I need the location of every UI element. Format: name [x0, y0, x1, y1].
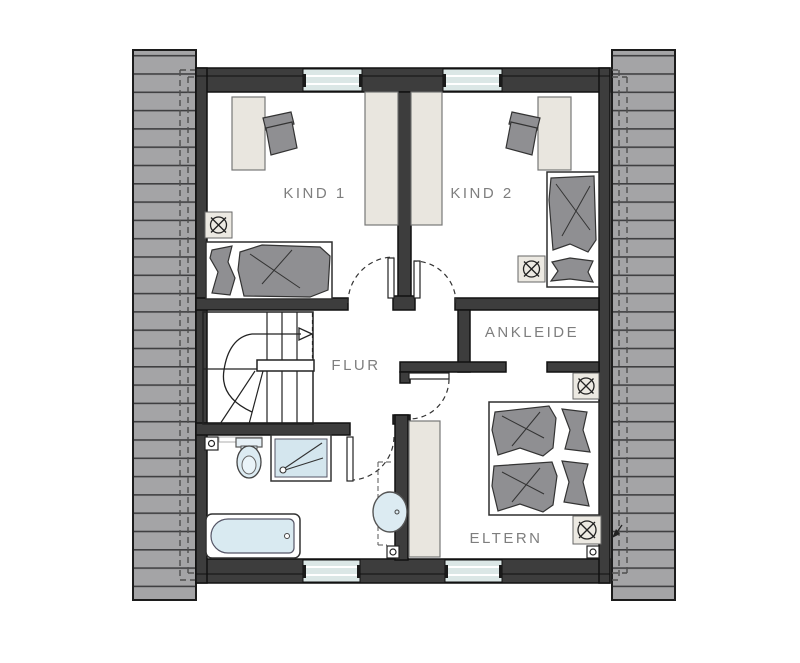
corner-symbol-eltern — [587, 546, 599, 558]
double-bed-eltern — [489, 402, 599, 515]
wall-eltern-north-left — [400, 362, 506, 372]
room-label-kind1: KIND 1 — [283, 185, 346, 202]
window-top-left — [303, 69, 362, 91]
exterior-wall-top — [196, 68, 610, 92]
exterior-wall-right — [599, 68, 610, 583]
toilet — [236, 438, 262, 478]
desk-kind1 — [232, 97, 265, 170]
room-label-ankleide: ANKLEIDE — [485, 324, 579, 341]
bath-corner-symbol-2 — [387, 546, 399, 558]
wall-stub-foot — [393, 296, 415, 310]
vent-symbol-eltern — [573, 516, 601, 544]
stair-handrail — [257, 360, 314, 371]
wall-kind1-kind2 — [398, 92, 411, 307]
wall-eltern-north-right — [547, 362, 599, 372]
tub-drain — [285, 534, 290, 539]
exterior-wall-bottom — [196, 559, 610, 583]
room-label-kind2: KIND 2 — [450, 185, 513, 202]
bathtub — [206, 514, 300, 558]
floor-plan-drawing: KIND 1 KIND 2 ANKLEIDE — [0, 0, 800, 663]
vent-symbol-kind2 — [518, 256, 545, 282]
bed-kind2 — [547, 172, 599, 287]
roof-strip-right — [612, 50, 675, 600]
roof-strip-left — [133, 50, 196, 600]
window-bottom-right — [445, 560, 502, 582]
floor-plan-page: KIND 1 KIND 2 ANKLEIDE — [0, 0, 800, 663]
room-label-flur: FLUR — [331, 357, 380, 374]
wardrobe-kind2 — [411, 92, 442, 225]
pillow — [551, 258, 593, 282]
shower — [271, 435, 331, 481]
wall-bath-eltern — [395, 415, 408, 560]
wall-kind1-south — [196, 298, 348, 310]
wardrobe-eltern — [409, 421, 440, 557]
vent-symbol-ankleide — [573, 373, 599, 399]
wall-kind2-south — [455, 298, 599, 310]
vent-symbol-kind1 — [205, 212, 232, 238]
window-top-right — [443, 69, 502, 91]
shower-drain — [280, 467, 286, 473]
wardrobe-kind1 — [365, 92, 398, 225]
exterior-wall-left — [196, 68, 207, 583]
bed-kind1 — [206, 242, 332, 299]
room-label-eltern: ELTERN — [469, 530, 542, 547]
wall-bath-north — [196, 423, 350, 435]
window-bottom-left — [303, 560, 360, 582]
duvet — [238, 245, 330, 297]
desk-kind2 — [538, 97, 571, 170]
